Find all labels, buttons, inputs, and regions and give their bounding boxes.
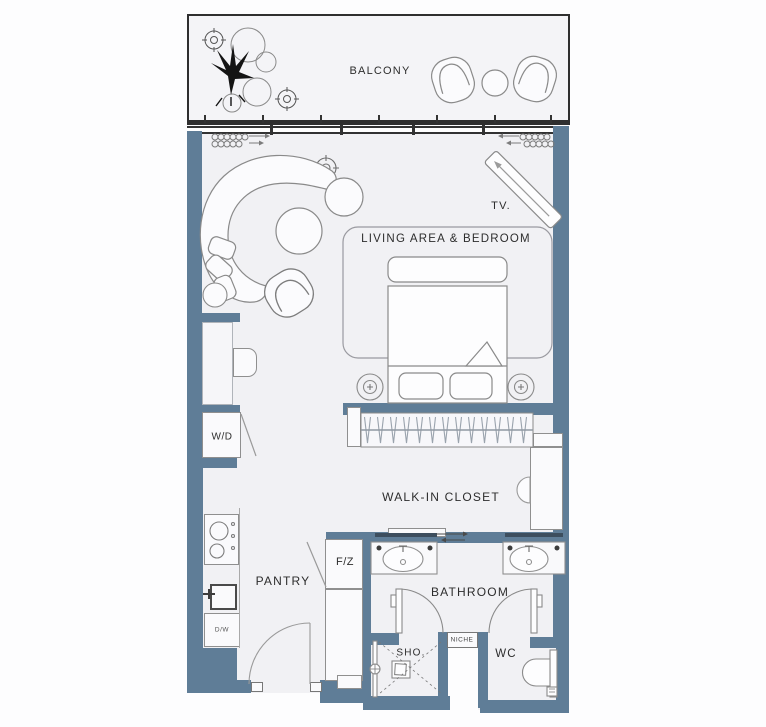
- entry-threshold-left: [251, 682, 263, 692]
- mirror-right: [505, 533, 563, 537]
- glass-divider: [340, 125, 343, 135]
- label-tv: TV.: [491, 200, 511, 212]
- wall-left-mid: [187, 322, 202, 405]
- label-niche: NICHE: [451, 637, 474, 644]
- desk-niche: [202, 322, 233, 405]
- wall-stub-a: [187, 313, 240, 322]
- label-wd: W/D: [212, 432, 233, 443]
- glass-divider: [482, 125, 485, 135]
- desk: [233, 348, 257, 377]
- label-balcony: BALCONY: [350, 65, 411, 77]
- railing-post: [494, 115, 496, 123]
- wall-wc-bottom: [480, 700, 568, 713]
- railing-post: [204, 115, 206, 123]
- closet-shelf: [533, 433, 563, 447]
- label-bathroom: BATHROOM: [431, 585, 509, 599]
- cooktop: [204, 514, 239, 565]
- railing-post: [378, 115, 380, 123]
- railing-post: [262, 115, 264, 123]
- wall-bath-left: [363, 532, 371, 708]
- wall-left-wd: [187, 413, 202, 458]
- wall-corner-bottom-left: [187, 648, 237, 693]
- railing-post: [436, 115, 438, 123]
- label-sho: SHO.: [396, 648, 425, 659]
- kitchen-sink: [210, 584, 237, 610]
- wall-below-wd: [187, 458, 237, 468]
- wall-left-upper: [187, 131, 202, 313]
- counter-edge: [239, 508, 240, 648]
- cabinet-base-box: [337, 675, 362, 689]
- exterior-notch: [448, 648, 478, 713]
- railing-post: [550, 115, 552, 123]
- sliding-glass-doors: [187, 126, 569, 134]
- label-fz: F/Z: [336, 556, 354, 568]
- label-pantry: PANTRY: [256, 574, 311, 588]
- closet-cabinet: [530, 447, 563, 530]
- wall-entry-stub: [237, 680, 251, 693]
- railing-post: [320, 115, 322, 123]
- label-dw: D/W: [215, 627, 229, 634]
- glass-divider: [412, 125, 415, 135]
- tall-cabinet: [325, 589, 363, 681]
- wall-left-kitchen: [187, 468, 203, 648]
- glass-divider: [270, 125, 273, 135]
- rail-end-box: [347, 407, 361, 447]
- label-wc: WC: [495, 648, 517, 660]
- wall-closet-top: [343, 403, 553, 415]
- wall-niche-right: [478, 632, 488, 708]
- wall-shower-bottom: [363, 696, 450, 710]
- floor-plan: BALCONY TV. LIVING AREA & BEDROOM W/D WA…: [0, 0, 766, 727]
- mirror-left: [375, 533, 437, 537]
- wall-right: [553, 126, 569, 646]
- wall-shower-top: [363, 633, 399, 645]
- label-living: LIVING AREA & BEDROOM: [361, 233, 531, 245]
- wall-right-lower: [556, 646, 569, 713]
- entry-threshold-right: [310, 682, 322, 692]
- label-walk-in-closet: WALK-IN CLOSET: [382, 490, 500, 504]
